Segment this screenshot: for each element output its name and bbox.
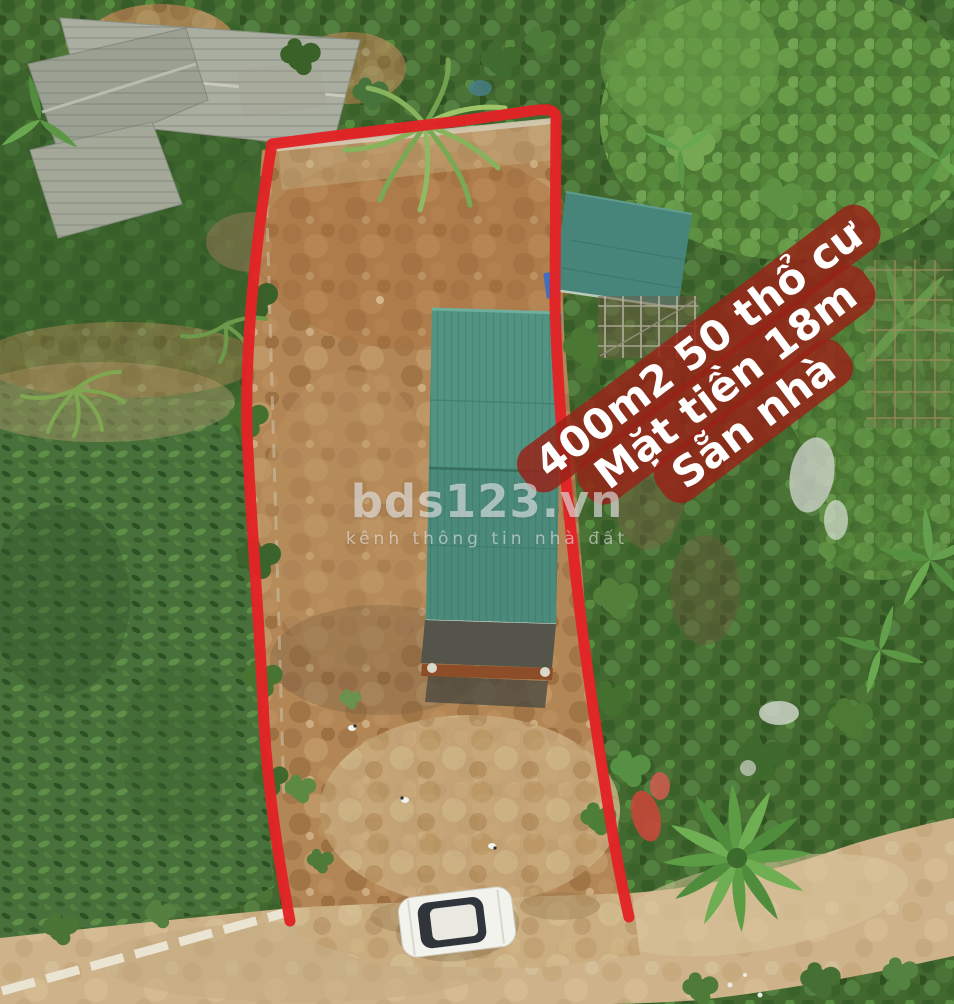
long-green-roof-building [421,308,562,708]
construction-scaffold [598,296,698,358]
bamboo-lattice [865,258,953,428]
aerial-photo: 400m2 50 thổ cư Mặt tiền 18m Sẵn nhà bds… [0,0,954,1004]
aerial-scene [0,0,954,1004]
